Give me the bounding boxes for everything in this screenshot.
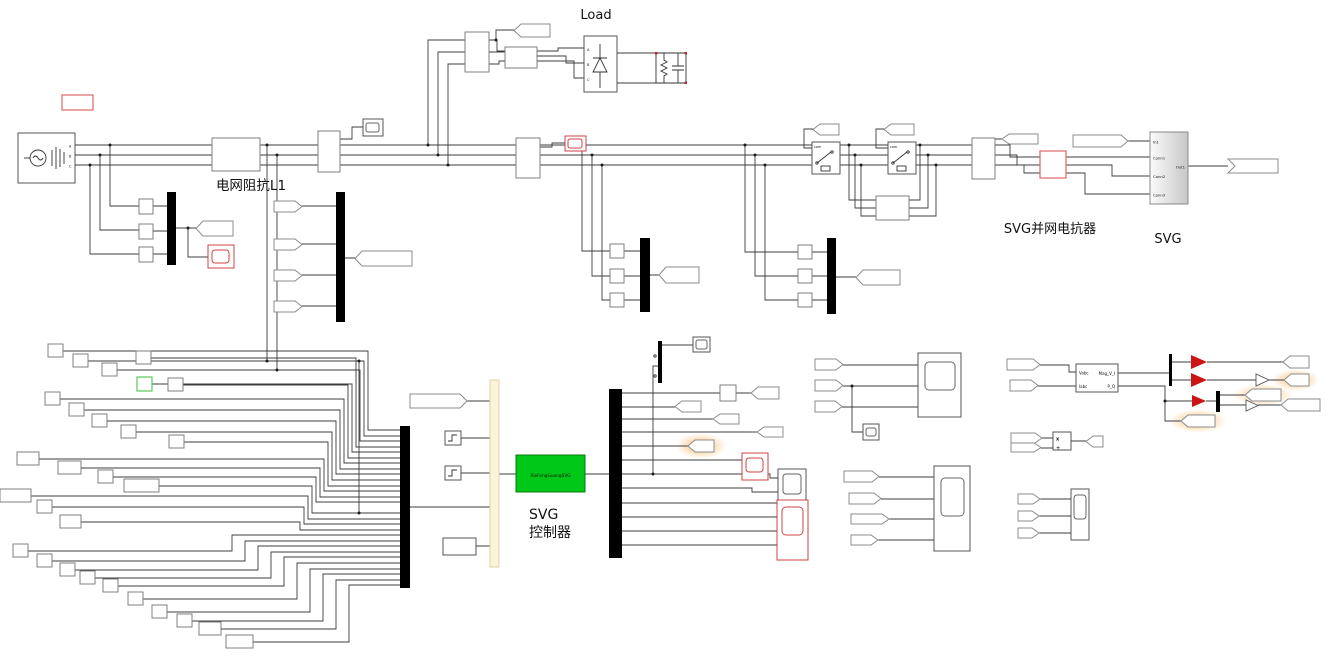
cascade-block[interactable] (17, 452, 39, 465)
measure-block[interactable] (610, 244, 624, 258)
power-from-tag[interactable] (1007, 359, 1040, 370)
load-from-tag[interactable] (514, 24, 550, 37)
cascade-block[interactable] (226, 635, 253, 648)
svg-controller-name: XieFengGuangSVG (530, 473, 570, 479)
goto-tag-p-highlighted[interactable] (1245, 389, 1281, 401)
demux-goto-tag[interactable] (751, 387, 779, 399)
cascade-block[interactable] (98, 470, 113, 483)
breaker-2-label: com (890, 145, 898, 149)
svg-out1-goto-tag[interactable] (1228, 159, 1278, 173)
measure-block[interactable] (610, 293, 624, 307)
cascade-block[interactable] (128, 592, 143, 605)
scope3-from-tag[interactable] (1018, 511, 1039, 521)
svg-port-conn1: Conn1 (1153, 156, 1166, 161)
scope-right-3[interactable] (1071, 489, 1089, 540)
rc-load-element[interactable] (655, 52, 687, 84)
cascade-block[interactable] (69, 403, 84, 416)
scope2-from-tag[interactable] (851, 514, 889, 524)
goto-tag-pq-highlighted[interactable] (1181, 415, 1215, 427)
svg-reactor-block[interactable] (1040, 151, 1066, 178)
gray-scope-mid[interactable] (778, 469, 806, 504)
load-distribution-block[interactable] (465, 32, 489, 72)
group-b-goto-tag[interactable] (856, 270, 900, 285)
svg-subsystem-label: SVG (1154, 232, 1181, 247)
red-display-block[interactable] (565, 136, 586, 151)
mux-cascade[interactable] (400, 426, 410, 588)
scope2-from-tag[interactable] (851, 535, 878, 545)
scope3-from-tag[interactable] (1018, 494, 1040, 504)
signal-wires[interactable] (28, 30, 1284, 642)
cascade-block[interactable] (37, 554, 52, 567)
gain-red-1[interactable] (1191, 355, 1207, 369)
step-block-1[interactable] (445, 431, 461, 445)
scope3-from-tag[interactable] (1018, 528, 1039, 538)
scope1-from-tag[interactable] (815, 380, 843, 391)
shunt-block-below-breakers[interactable] (876, 196, 909, 220)
big-red-scope[interactable] (777, 500, 808, 560)
unconnected-port (654, 375, 656, 377)
product-block[interactable]: x ÷ (1053, 432, 1071, 452)
display-block-1[interactable] (363, 119, 383, 136)
three-phase-source-block[interactable]: A B C (18, 133, 75, 183)
measure-block[interactable] (798, 293, 812, 307)
product-goto-tag[interactable] (1086, 436, 1103, 447)
mux-group-b[interactable] (827, 238, 836, 314)
unconnected-port (654, 355, 656, 357)
scope-right-2[interactable] (934, 466, 970, 551)
svg-port-in1: In1 (1153, 140, 1160, 145)
voltage-measure-block[interactable] (139, 247, 153, 262)
cascade-block[interactable] (0, 489, 31, 502)
power-from-tag[interactable] (1010, 380, 1038, 391)
mux-small-top[interactable] (658, 341, 662, 383)
vi-measurement-block-3[interactable] (972, 138, 995, 179)
measure-block[interactable] (798, 245, 812, 259)
controller-from-tag[interactable] (410, 394, 467, 408)
cascade-block[interactable] (124, 479, 159, 492)
bus-creator-cream[interactable] (490, 380, 499, 567)
scope2-from-tag[interactable] (849, 493, 881, 504)
measure-block[interactable] (798, 269, 812, 283)
wire-goto-bus-group[interactable] (302, 206, 355, 306)
demux-goto-tag[interactable] (757, 427, 783, 437)
scope-small-top[interactable] (693, 337, 710, 352)
gain-red-2[interactable] (1191, 373, 1207, 387)
svg-reactor-label: SVG并网电抗器 (1004, 222, 1096, 237)
svg-controller-block[interactable]: XieFengGuangSVG (516, 455, 585, 492)
controller-label-line1: SVG (529, 507, 558, 523)
cascade-block[interactable] (13, 544, 28, 557)
group-a-goto-tag[interactable] (659, 267, 699, 283)
scope1-from-tag[interactable] (815, 401, 842, 412)
demux-pq[interactable] (1216, 391, 1220, 412)
cascade-block[interactable] (136, 351, 151, 364)
wire-cascade-bundle[interactable] (28, 351, 400, 642)
goto-tag-mag1[interactable] (1283, 356, 1309, 368)
wire-long-verticals[interactable] (267, 145, 359, 513)
mux-left-group[interactable] (167, 192, 176, 265)
power-port-mag: Mag_V_I (1099, 371, 1115, 376)
simulink-model-canvas: A B C 电网阻抗L1 Load A B C com (0, 0, 1331, 656)
rectifier-block[interactable]: A B C (584, 36, 617, 92)
cascade-block[interactable] (48, 344, 63, 357)
wire-junction-dots (89, 39, 1167, 515)
cascade-block[interactable] (199, 622, 221, 635)
product-from-tag[interactable] (1011, 433, 1042, 443)
voltage-measure-block[interactable] (139, 224, 153, 239)
bus-from-tag[interactable] (274, 301, 302, 312)
cascade-block[interactable] (168, 378, 183, 391)
three-phase-breaker-1[interactable]: com (812, 142, 840, 174)
cascade-block[interactable] (80, 571, 95, 584)
product-div-sign: ÷ (1056, 446, 1060, 452)
demux-goto-tag[interactable] (675, 401, 701, 412)
scope2-from-tag[interactable] (844, 471, 879, 482)
search-highlight-glows (675, 369, 1320, 459)
svg-port-conn3: Conn3 (1153, 193, 1166, 198)
display-block-small[interactable] (863, 424, 879, 440)
vi-measurement-block-2[interactable] (516, 138, 540, 178)
product-from-tag[interactable] (1011, 443, 1041, 452)
svg-port-out1: Out1 (1176, 165, 1186, 170)
cascade-block[interactable] (102, 363, 117, 376)
vi-measurement-block-1[interactable] (318, 131, 340, 172)
cascade-block[interactable] (37, 500, 52, 513)
cascade-block[interactable] (121, 425, 136, 438)
svg-subsystem-block[interactable]: In1 Conn1 Conn2 Conn3 Out1 (1150, 132, 1188, 204)
bus-from-tag[interactable] (274, 239, 302, 250)
constant-block[interactable] (443, 538, 476, 555)
svg-port-conn2: Conn2 (1153, 174, 1166, 179)
bus-from-tag[interactable] (274, 270, 302, 281)
cascade-block[interactable] (73, 354, 88, 367)
mux-group-a[interactable] (640, 238, 650, 312)
load-series-block[interactable] (505, 47, 537, 68)
demux-controller-out[interactable] (609, 389, 622, 558)
breaker-1-from-tag[interactable] (813, 124, 839, 135)
bus-from-tag[interactable] (274, 201, 302, 212)
cascade-block[interactable] (152, 605, 167, 618)
cascade-block-green[interactable] (137, 377, 152, 391)
goto-tag-q[interactable] (1281, 399, 1320, 411)
left-group-goto-tag[interactable] (196, 221, 233, 236)
scope-right-1[interactable] (918, 353, 961, 417)
voltage-measure-block[interactable] (139, 199, 153, 214)
grid-impedance-label: 电网阻抗L1 (216, 178, 286, 194)
cascade-block[interactable] (60, 515, 81, 528)
red-scope-mid[interactable] (742, 453, 768, 480)
cascade-block[interactable] (169, 435, 184, 448)
cascade-block[interactable] (92, 414, 107, 427)
power-measurement-block[interactable]: Vabc Iabc Mag_V_I P_Q (1076, 364, 1118, 392)
left-red-scope[interactable] (208, 245, 234, 268)
three-phase-breaker-2[interactable]: com (888, 142, 916, 174)
red-annotation-box[interactable] (62, 95, 93, 110)
measurement-3-from-tag[interactable] (1002, 134, 1038, 144)
demux-goto-tag[interactable] (713, 414, 739, 424)
bus-goto-tag-large[interactable] (355, 251, 412, 266)
cascade-block[interactable] (103, 579, 118, 592)
power-port-vabc: Vabc (1079, 371, 1089, 376)
svg-in1-from-tag[interactable] (1073, 135, 1128, 147)
step-block-2[interactable] (445, 466, 461, 480)
breaker-1-label: com (814, 145, 822, 149)
grid-impedance-block[interactable] (212, 138, 260, 171)
gain-red-3[interactable] (1192, 395, 1206, 407)
breaker-2-from-tag[interactable] (884, 124, 914, 135)
signal-block-square[interactable] (720, 385, 736, 401)
cascade-block[interactable] (177, 614, 192, 627)
mux-bus-signals[interactable] (336, 192, 345, 322)
load-label: Load (580, 8, 611, 23)
controller-label-line2: 控制器 (529, 525, 571, 541)
measure-block[interactable] (610, 269, 624, 283)
scope1-from-tag[interactable] (815, 359, 843, 370)
power-port-pq: P_Q (1107, 384, 1115, 389)
cascade-block[interactable] (45, 392, 60, 405)
cascade-block[interactable] (60, 563, 75, 576)
demux-mag[interactable] (1169, 354, 1172, 386)
power-port-iabc: Iabc (1079, 384, 1087, 389)
cascade-block[interactable] (58, 461, 81, 474)
